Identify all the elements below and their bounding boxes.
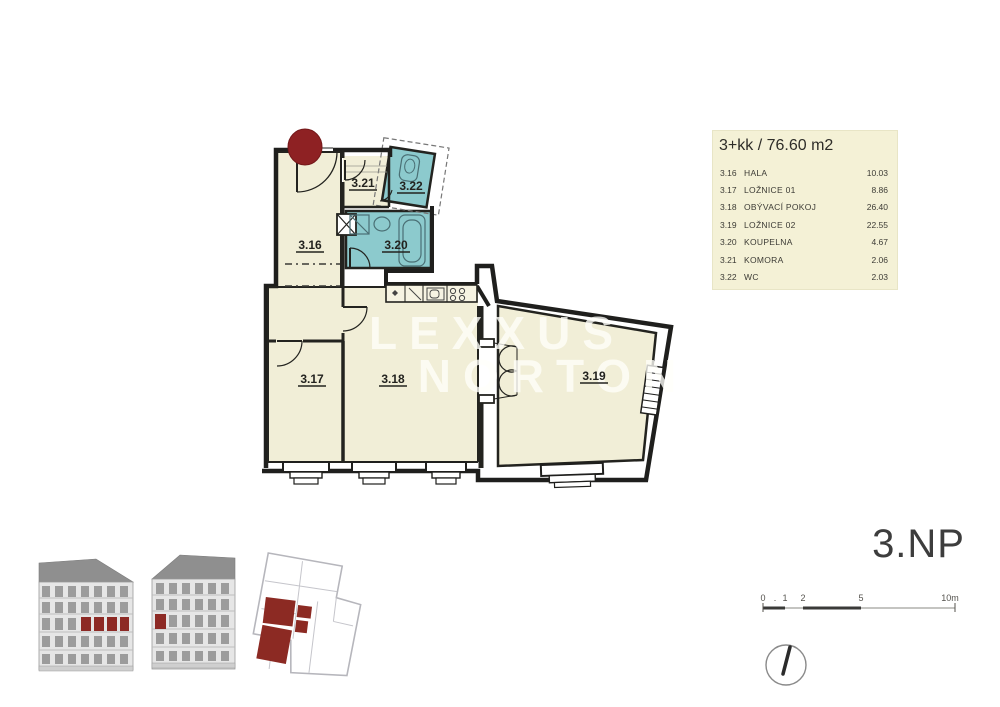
room-code: 3.17: [720, 185, 744, 195]
highlight-window: [94, 617, 104, 631]
legend-row: 3.21 KOMORA 2.06: [712, 251, 898, 268]
label-koupelna: 3.20: [384, 238, 408, 252]
room-name: LOŽNICE 02: [744, 220, 854, 230]
legend-row: 3.17 LOŽNICE 01 8.86: [712, 181, 898, 198]
room-name: HALA: [744, 168, 854, 178]
highlight-window: [81, 617, 91, 631]
scale-tick-2: 2: [800, 593, 805, 603]
legend-title: 3+kk / 76.60 m2: [719, 137, 898, 155]
roof-right: [152, 555, 235, 579]
room-name: LOŽNICE 01: [744, 185, 854, 195]
scanned-floorplan-page: LEXXUS NORTON 3.16 3.17 3.18 3.19 3.20 3…: [0, 0, 1000, 707]
legend-row: 3.19 LOŽNICE 02 22.55: [712, 216, 898, 233]
room-name: WC: [744, 272, 854, 282]
label-wc: 3.22: [399, 179, 423, 193]
kitchen-strip: [386, 285, 477, 302]
key-plan: [249, 552, 365, 680]
floor-plan: LEXXUS NORTON 3.16 3.17 3.18 3.19 3.20 3…: [262, 129, 688, 488]
roof-left: [39, 559, 133, 582]
label-obyvaci-pokoj: 3.18: [381, 372, 405, 386]
room-name: OBÝVACÍ POKOJ: [744, 202, 854, 212]
watermark-line2: NORTON: [418, 350, 689, 402]
room-code: 3.22: [720, 272, 744, 282]
scale-tick-10m: 10m: [941, 593, 959, 603]
legend-row: 3.18 OBÝVACÍ POKOJ 26.40: [712, 199, 898, 216]
room-code: 3.20: [720, 237, 744, 247]
scale-bar: 0 . 1 2 5 10m: [760, 593, 958, 612]
label-loznice02: 3.19: [582, 369, 606, 383]
label-komora: 3.21: [351, 176, 375, 190]
shaft-icon: [337, 214, 356, 235]
label-hala: 3.16: [298, 238, 322, 252]
room-code: 3.21: [720, 255, 744, 265]
legend-rows: 3.16 HALA 10.03 3.17 LOŽNICE 01 8.86 3.1…: [712, 164, 898, 286]
highlight-window: [155, 614, 166, 629]
legend-row: 3.20 KOUPELNA 4.67: [712, 234, 898, 251]
legend-panel: 3+kk / 76.60 m2 3.16 HALA 10.03 3.17 LOŽ…: [712, 130, 898, 290]
scale-tick-1: 1: [782, 593, 787, 603]
scale-tick-5: 5: [858, 593, 863, 603]
room-area: 2.06: [854, 255, 888, 265]
windows-bottom: [283, 462, 604, 488]
entrance-marker-dot: [288, 129, 322, 165]
room-area: 26.40: [854, 202, 888, 212]
highlight-window: [107, 617, 117, 631]
compass: [766, 645, 806, 685]
highlight-window: [120, 617, 129, 631]
elevation-right: [152, 555, 235, 669]
scale-tick-dot: .: [774, 593, 777, 603]
room-name: KOMORA: [744, 255, 854, 265]
room-code: 3.19: [720, 220, 744, 230]
scale-tick-0: 0: [760, 593, 765, 603]
room-name: KOUPELNA: [744, 237, 854, 247]
legend-row: 3.22 WC 2.03: [712, 268, 898, 285]
label-loznice01: 3.17: [300, 372, 324, 386]
room-area: 2.03: [854, 272, 888, 282]
room-area: 10.03: [854, 168, 888, 178]
floor-label: 3.NP: [838, 522, 965, 567]
plan-canvas: LEXXUS NORTON 3.16 3.17 3.18 3.19 3.20 3…: [0, 0, 1000, 707]
room-code: 3.18: [720, 202, 744, 212]
elevation-left: [39, 559, 133, 671]
room-area: 8.86: [854, 185, 888, 195]
legend-row: 3.16 HALA 10.03: [712, 164, 898, 181]
room-area: 4.67: [854, 237, 888, 247]
room-code: 3.16: [720, 168, 744, 178]
room-area: 22.55: [854, 220, 888, 230]
